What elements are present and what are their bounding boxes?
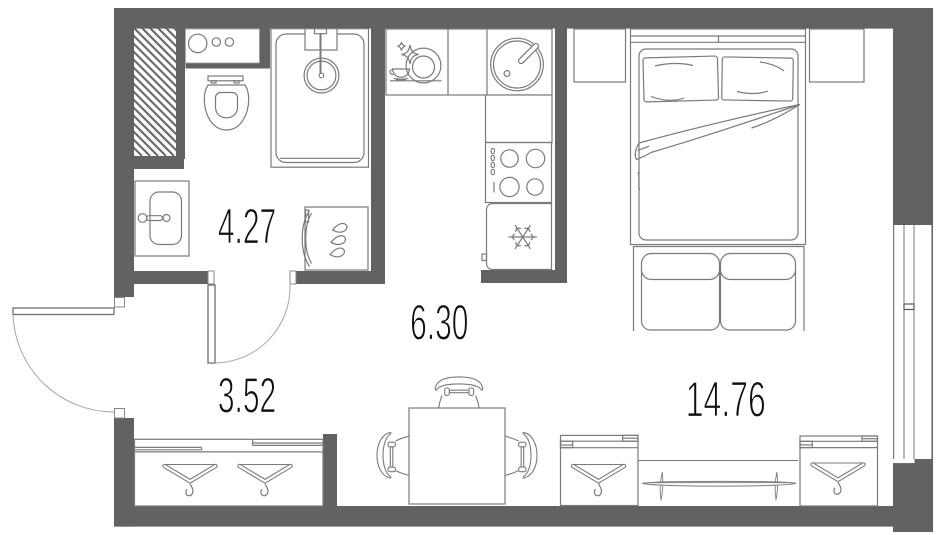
svg-text:14.76: 14.76 (686, 371, 766, 427)
svg-text:6.30: 6.30 (410, 295, 468, 351)
svg-text:3.52: 3.52 (218, 368, 276, 424)
svg-text:4.27: 4.27 (218, 199, 276, 255)
